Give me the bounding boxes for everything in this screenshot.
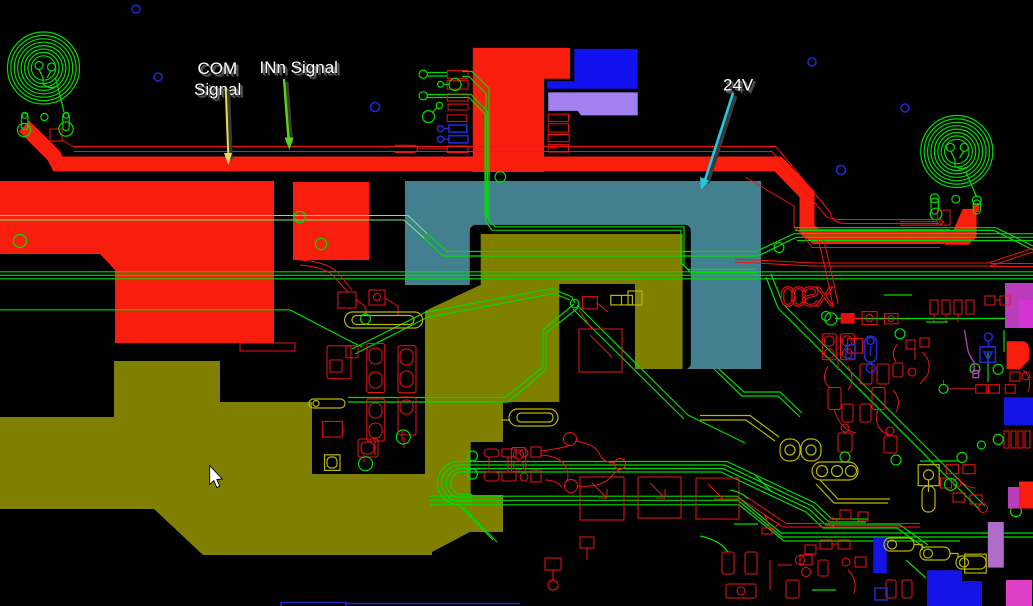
svg-text:COM: COM [198,59,238,78]
svg-text:XS00: XS00 [780,281,834,312]
svg-text:24V: 24V [723,76,754,95]
svg-text:INn Signal: INn Signal [260,58,338,77]
svg-text:Signal: Signal [194,80,241,99]
